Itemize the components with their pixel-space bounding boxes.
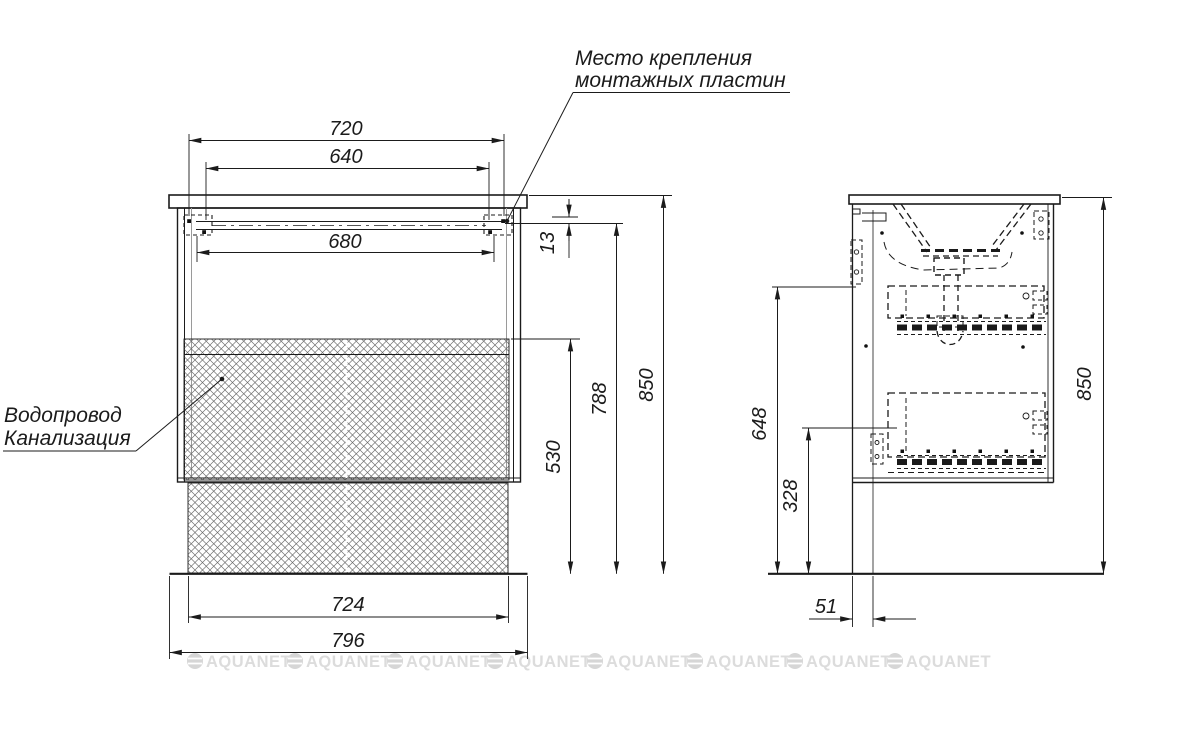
side-back-panel-fitting xyxy=(851,240,883,464)
front-countertop xyxy=(169,195,527,208)
side-dim-back-gap-label: 51 xyxy=(815,596,837,618)
technical-drawing-page: AQUANET AQUANET AQUANET AQUANET AQUANET … xyxy=(0,0,1183,748)
side-dim-overall-height-label: 850 xyxy=(1074,367,1096,400)
annotation-mounting-plates: Место крепления монтажных пластин xyxy=(505,47,790,223)
side-wall-bracket xyxy=(853,209,1025,349)
vanity-drawing-canvas: AQUANET AQUANET AQUANET AQUANET AQUANET … xyxy=(0,0,1183,748)
front-mounting-plate-right xyxy=(484,215,512,235)
side-view-dimension-labels: 648 328 51 850 xyxy=(749,367,1096,618)
front-dim-top-outer-label: 720 xyxy=(329,118,362,140)
side-dim-outlet-height-label: 328 xyxy=(780,479,802,512)
watermark-text: AQUANET xyxy=(606,653,691,671)
front-mounting-plate-left xyxy=(184,215,212,235)
watermark-text: AQUANET xyxy=(706,653,791,671)
plumbing-label-line2: Канализация xyxy=(4,427,131,450)
front-dim-bottom-outer-label: 796 xyxy=(331,630,365,652)
side-basin-hidden xyxy=(884,204,1031,275)
front-dim-hatch-height-label: 530 xyxy=(543,440,565,473)
front-dim-rail-height-label: 788 xyxy=(589,382,611,415)
watermark-row: AQUANET AQUANET AQUANET AQUANET AQUANET … xyxy=(187,653,991,671)
side-dim-siphon-height-label: 648 xyxy=(749,407,771,440)
watermark-text: AQUANET xyxy=(506,653,591,671)
plumbing-label-line1: Водопровод xyxy=(4,404,122,427)
front-pipe-zone-hatch-lower xyxy=(188,483,508,573)
front-mounting-rail xyxy=(196,222,502,230)
dim-640 xyxy=(206,162,489,220)
mounting-plates-leader-line xyxy=(507,93,573,222)
watermark-text: AQUANET xyxy=(306,653,391,671)
side-view-dimensions xyxy=(772,198,1112,628)
front-dim-top-offset-label: 13 xyxy=(537,232,559,254)
front-dim-bottom-inner-label: 724 xyxy=(331,594,364,616)
dim-648 xyxy=(772,287,856,574)
watermark-text: AQUANET xyxy=(406,653,491,671)
front-dim-top-inner-label: 640 xyxy=(329,146,362,168)
front-dim-overall-height-label: 850 xyxy=(636,368,658,401)
watermark-text: AQUANET xyxy=(906,653,991,671)
side-countertop xyxy=(849,195,1060,204)
side-upper-drawer xyxy=(888,286,1046,335)
mounting-plates-label-line2: монтажных пластин xyxy=(575,69,786,92)
mounting-plates-label-line1: Место крепления xyxy=(575,47,752,70)
watermark-text: AQUANET xyxy=(806,653,891,671)
front-dim-rail-label: 680 xyxy=(328,231,361,253)
watermark-text: AQUANET xyxy=(206,653,291,671)
side-right-wall-fittings xyxy=(1023,211,1049,434)
side-lower-drawer xyxy=(888,393,1046,473)
side-view xyxy=(768,195,1104,574)
